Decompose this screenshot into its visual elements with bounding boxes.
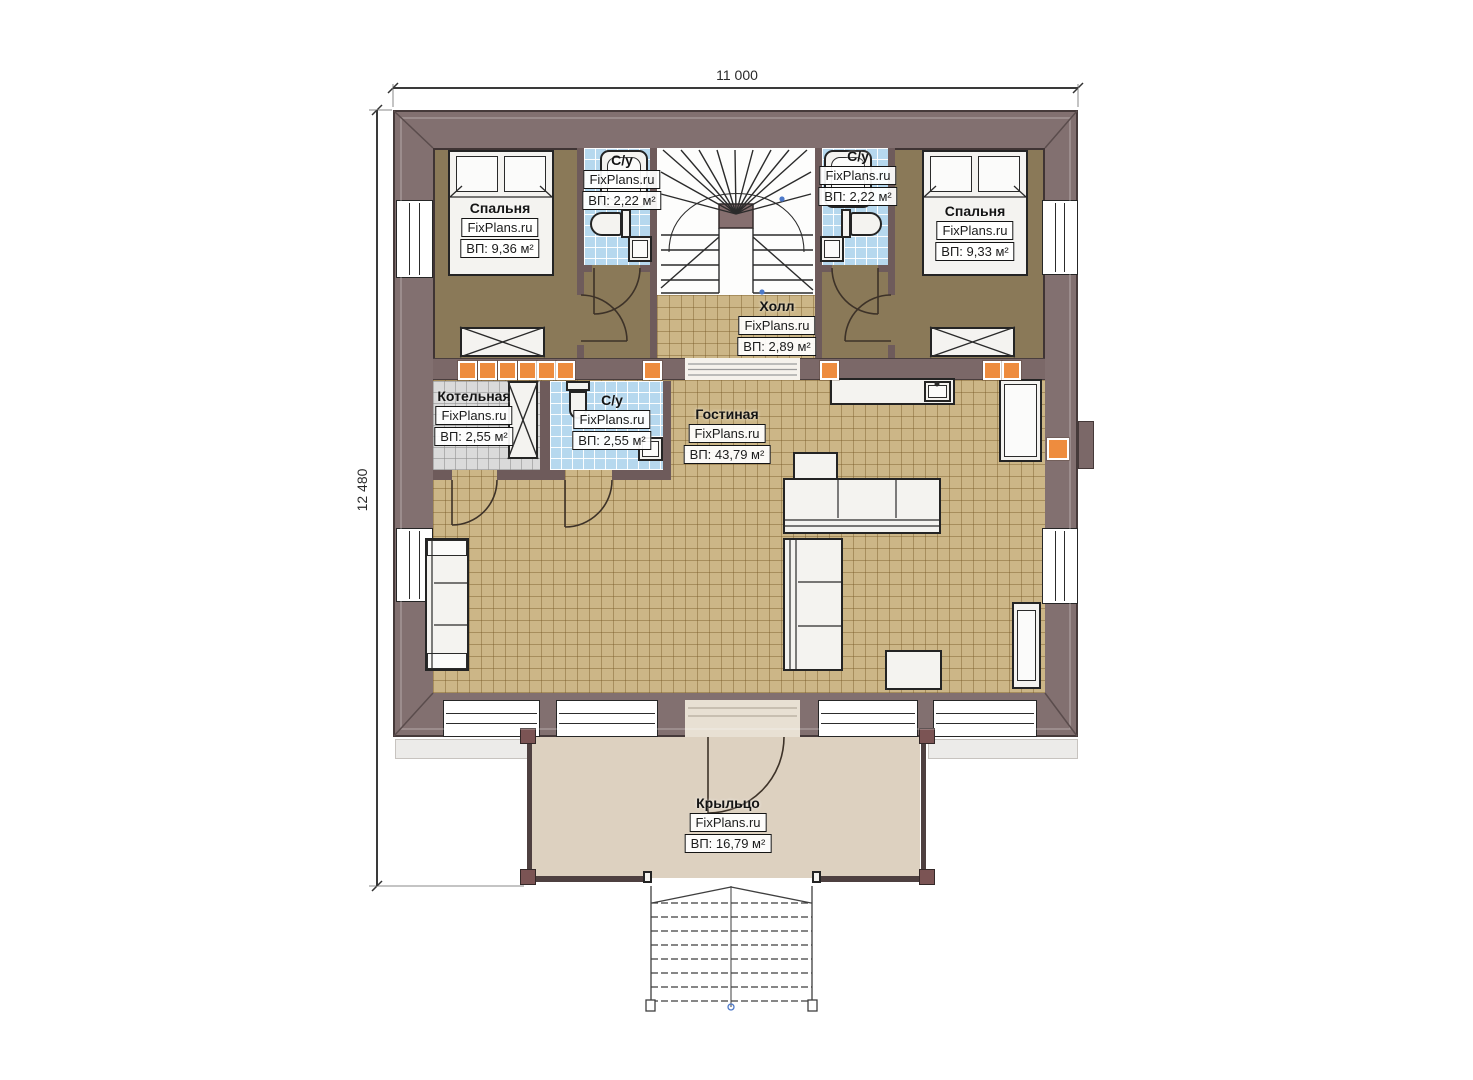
- room-name: С/у: [601, 392, 623, 408]
- sofa-armrest: [427, 540, 467, 556]
- dimension-line-top: [393, 87, 1078, 89]
- porch-post: [919, 728, 935, 744]
- wardrobe: [460, 327, 545, 357]
- wall: [433, 470, 452, 480]
- wall-marker: [478, 361, 497, 380]
- glazing-line: [1055, 531, 1056, 601]
- room-area: ВП: 2,22 м²: [818, 187, 897, 206]
- wall-marker: [983, 361, 1002, 380]
- room-area: ВП: 2,55 м²: [434, 427, 513, 446]
- sofa-armrest: [427, 653, 467, 669]
- room-brand: FixPlans.ru: [461, 218, 538, 237]
- room-name: Холл: [759, 298, 794, 314]
- window: [818, 700, 918, 737]
- room-area: ВП: 2,22 м²: [582, 191, 661, 210]
- glazing-line: [446, 723, 537, 724]
- room-area: ВП: 16,79 м²: [685, 834, 772, 853]
- glazing-line: [821, 713, 915, 714]
- wall-marker: [643, 361, 662, 380]
- wall-marker: [820, 361, 839, 380]
- entrance-opening: [685, 700, 800, 737]
- railing-post: [812, 871, 821, 883]
- wall: [640, 265, 650, 272]
- room-label-boiler-room: Котельная FixPlans.ru ВП: 2,55 м²: [434, 388, 513, 446]
- wall-marker: [518, 361, 537, 380]
- room-brand: FixPlans.ru: [936, 221, 1013, 240]
- room-label-bathroom-top-right: С/у FixPlans.ru ВП: 2,22 м²: [818, 148, 897, 206]
- room-label-bathroom-lower: С/у FixPlans.ru ВП: 2,55 м²: [572, 392, 651, 450]
- porch-wall: [812, 876, 926, 882]
- wall-marker: [1047, 438, 1069, 460]
- window: [556, 700, 658, 737]
- room-name: Гостиная: [695, 406, 758, 422]
- glazing-line: [446, 713, 537, 714]
- wall: [822, 265, 832, 272]
- hall-threshold: [685, 358, 800, 380]
- wall: [888, 345, 895, 358]
- side-entrance-bump: [1078, 421, 1094, 469]
- glazing-line: [559, 713, 655, 714]
- room-name: С/у: [611, 152, 633, 168]
- wall: [663, 381, 671, 470]
- wall: [540, 381, 550, 470]
- wall-marker: [498, 361, 517, 380]
- sofa-horizontal: [783, 478, 941, 534]
- room-label-bedroom-right: Спальня FixPlans.ru ВП: 9,33 м²: [935, 203, 1014, 261]
- room-label-porch: Крыльцо FixPlans.ru ВП: 16,79 м²: [685, 795, 772, 853]
- room-label-hall: Холл FixPlans.ru ВП: 2,89 м²: [737, 298, 816, 356]
- glazing-line: [936, 723, 1034, 724]
- toilet-tank: [566, 381, 590, 391]
- room-area: ВП: 2,89 м²: [737, 337, 816, 356]
- wall: [577, 345, 584, 358]
- wall: [497, 470, 565, 480]
- glazing-line: [1064, 531, 1065, 601]
- window: [1042, 528, 1078, 604]
- porch-wall: [527, 876, 651, 882]
- pillow: [456, 156, 498, 192]
- glazing-line: [409, 203, 410, 275]
- window: [396, 200, 433, 278]
- sink-basin: [632, 240, 648, 258]
- sofa-vertical: [783, 538, 843, 671]
- wall-marker: [537, 361, 556, 380]
- wall-marker: [556, 361, 575, 380]
- railing-post: [643, 871, 652, 883]
- sofa-left-wall: [425, 538, 469, 671]
- room-name: Крыльцо: [696, 795, 760, 811]
- room-area: ВП: 9,33 м²: [935, 242, 1014, 261]
- wall-marker: [458, 361, 477, 380]
- pillow: [930, 156, 972, 192]
- dimension-line-left: [376, 110, 378, 886]
- wall: [878, 265, 888, 272]
- sink-basin: [824, 240, 840, 258]
- porch-post: [520, 728, 536, 744]
- dimension-label-left: 12 480: [354, 465, 370, 516]
- room-label-bathroom-top-left: С/у FixPlans.ru ВП: 2,22 м²: [582, 152, 661, 210]
- room-area: ВП: 9,36 м²: [460, 239, 539, 258]
- window: [933, 700, 1037, 737]
- staircase-floor: [657, 148, 815, 295]
- room-name: С/у: [847, 148, 869, 164]
- sofa-corner-section: [793, 452, 838, 481]
- room-name: Спальня: [945, 203, 1005, 219]
- glazing-line: [1055, 203, 1056, 272]
- porch-wall: [527, 733, 532, 883]
- room-area: ВП: 43,79 м²: [684, 445, 771, 464]
- room-label-bedroom-left: Спальня FixPlans.ru ВП: 9,36 м²: [460, 200, 539, 258]
- room-name: Котельная: [437, 388, 510, 404]
- toilet-tank: [841, 209, 851, 238]
- room-brand: FixPlans.ru: [689, 813, 766, 832]
- room-brand: FixPlans.ru: [688, 424, 765, 443]
- window: [1042, 200, 1078, 275]
- fridge-inner: [1004, 384, 1037, 457]
- ground-shadow: [395, 739, 529, 759]
- coffee-table: [885, 650, 942, 690]
- room-name: Спальня: [470, 200, 530, 216]
- toilet: [590, 212, 622, 236]
- porch-post: [919, 869, 935, 885]
- porch-post: [520, 869, 536, 885]
- pillow: [504, 156, 546, 192]
- wall: [612, 470, 671, 480]
- glazing-line: [559, 723, 655, 724]
- room-brand: FixPlans.ru: [738, 316, 815, 335]
- toilet-tank: [621, 209, 631, 238]
- room-label-living-room: Гостиная FixPlans.ru ВП: 43,79 м²: [684, 406, 771, 464]
- room-area: ВП: 2,55 м²: [572, 431, 651, 450]
- wall: [584, 265, 592, 272]
- toilet: [850, 212, 882, 236]
- room-brand: FixPlans.ru: [819, 166, 896, 185]
- glazing-line: [419, 203, 420, 275]
- pillow: [978, 156, 1020, 192]
- dimension-label-top: 11 000: [712, 67, 762, 83]
- glazing-line: [1064, 203, 1065, 272]
- glazing-line: [936, 713, 1034, 714]
- floor-plan-canvas: 11 000 12 480: [0, 0, 1473, 1080]
- porch-wall: [921, 733, 926, 883]
- kitchen-sink-basin: [928, 385, 947, 398]
- glazing-line: [821, 723, 915, 724]
- ground-shadow: [928, 739, 1078, 759]
- room-brand: FixPlans.ru: [573, 410, 650, 429]
- wall-marker: [1002, 361, 1021, 380]
- glazing-line: [409, 531, 410, 599]
- tv-stand-inner: [1017, 610, 1036, 681]
- room-brand: FixPlans.ru: [583, 170, 660, 189]
- room-brand: FixPlans.ru: [435, 406, 512, 425]
- wardrobe: [930, 327, 1015, 357]
- glazing-line: [419, 531, 420, 599]
